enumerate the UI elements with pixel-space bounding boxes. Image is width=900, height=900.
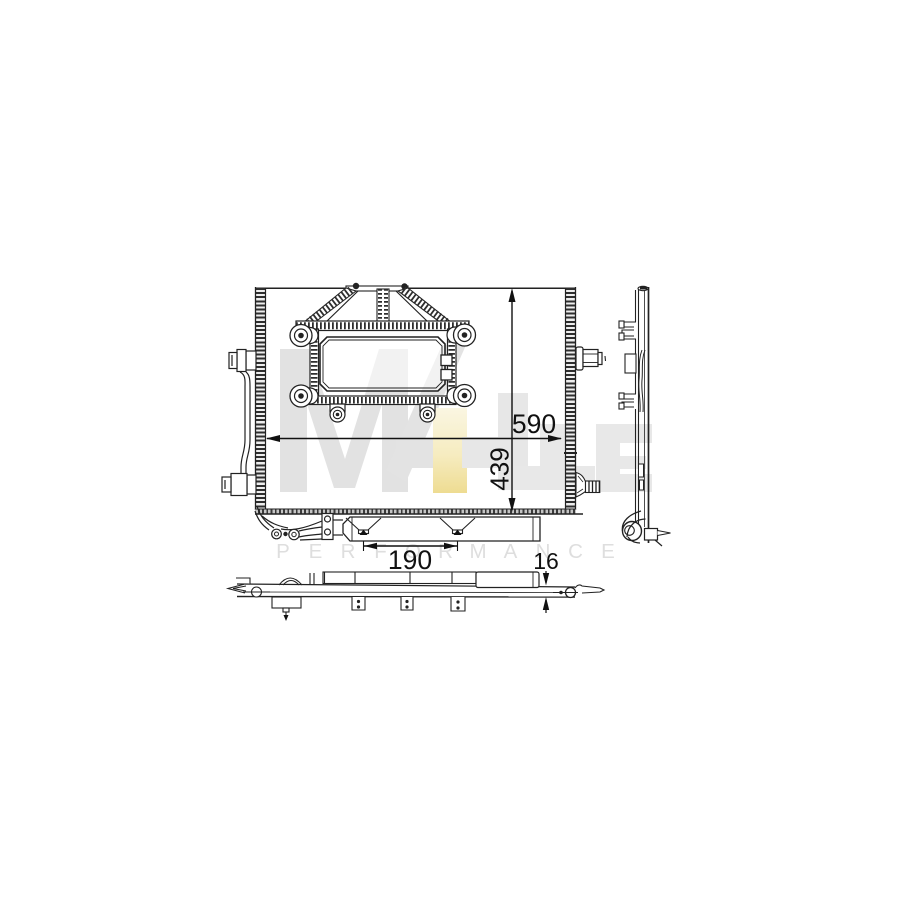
- svg-text:A: A: [504, 540, 518, 563]
- svg-text:590: 590: [512, 409, 556, 439]
- svg-text:R: R: [341, 540, 356, 563]
- svg-text:E: E: [309, 540, 323, 563]
- svg-text:P: P: [276, 540, 290, 563]
- svg-text:190: 190: [388, 545, 432, 575]
- svg-text:E: E: [601, 540, 615, 563]
- svg-text:439: 439: [485, 447, 515, 490]
- svg-text:C: C: [568, 540, 583, 563]
- svg-text:M: M: [469, 540, 486, 563]
- svg-text:16: 16: [533, 548, 559, 574]
